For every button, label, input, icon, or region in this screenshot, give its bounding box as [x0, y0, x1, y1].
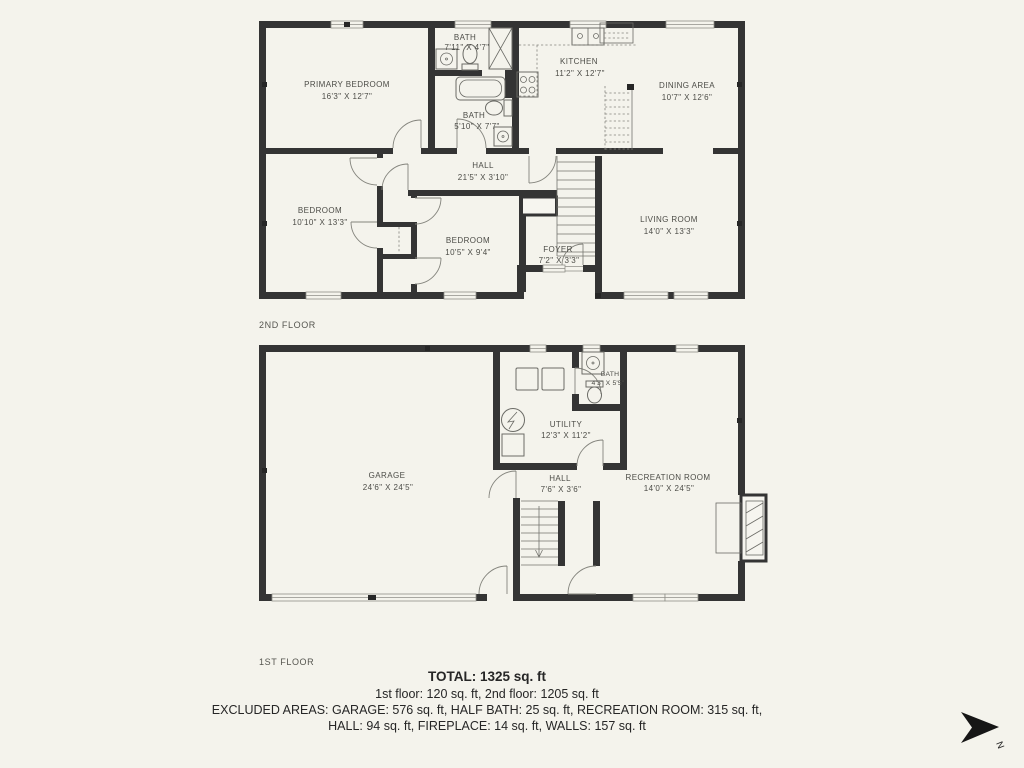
- room-dims: 7'2" X 3'3": [539, 256, 580, 265]
- dryer-icon: [542, 368, 564, 390]
- dimension-ticks: [262, 22, 742, 298]
- north-label: N: [993, 740, 1006, 751]
- room-name: PRIMARY BEDROOM: [304, 80, 390, 89]
- room-name: DINING AREA: [659, 81, 715, 90]
- room-name: KITCHEN: [560, 57, 598, 66]
- floor-plan-canvas: PRIMARY BEDROOM 16'3" X 12'7" BATH 7'11"…: [0, 0, 1024, 768]
- first-floor-label: 1ST FLOOR: [259, 657, 314, 667]
- room-name: FOYER: [543, 245, 573, 254]
- room-label-recreation-room: RECREATION ROOM 14'0" X 24'5": [626, 473, 711, 493]
- summary-excluded-1: EXCLUDED AREAS: GARAGE: 576 sq. ft, HALF…: [212, 703, 762, 717]
- shower-icon: [489, 28, 512, 69]
- foyer-closet: [522, 197, 557, 215]
- kitchen-sink-icon: [572, 28, 604, 45]
- second-floor-windows: [306, 21, 714, 299]
- toilet-icon: [486, 100, 513, 116]
- room-dims: 16'3" X 12'7": [322, 92, 372, 101]
- sink-icon: [436, 49, 457, 69]
- room-name: LIVING ROOM: [640, 215, 698, 224]
- room-dims: 24'6" X 24'5": [363, 483, 413, 492]
- room-name: UTILITY: [550, 420, 583, 429]
- fireplace-icon: [716, 495, 766, 561]
- room-dims: 10'7" X 12'6": [662, 93, 712, 102]
- room-dims: 10'10" X 13'3": [292, 218, 347, 227]
- summary-floors: 1st floor: 120 sq. ft, 2nd floor: 1205 s…: [375, 687, 599, 701]
- room-name: BATH: [454, 33, 476, 42]
- second-floor-plan: PRIMARY BEDROOM 16'3" X 12'7" BATH 7'11"…: [259, 21, 745, 330]
- room-label-kitchen: KITCHEN 11'2" X 12'7": [555, 57, 605, 78]
- summary-excluded-2: HALL: 94 sq. ft, FIREPLACE: 14 sq. ft, W…: [328, 719, 646, 733]
- second-floor-walls: [259, 21, 745, 299]
- room-dims: 14'0" X 13'3": [644, 227, 694, 236]
- room-name: GARAGE: [369, 471, 406, 480]
- area-summary: TOTAL: 1325 sq. ft 1st floor: 120 sq. ft…: [212, 669, 762, 733]
- room-label-bedroom-left: BEDROOM 10'10" X 13'3": [292, 206, 347, 227]
- room-dims: 12'3" X 11'2": [541, 431, 591, 440]
- room-label-bath-top: BATH 7'11" X 4'7": [445, 33, 490, 52]
- room-name: BEDROOM: [446, 236, 490, 245]
- room-label-primary-bedroom: PRIMARY BEDROOM 16'3" X 12'7": [304, 80, 390, 101]
- first-floor-plan: GARAGE 24'6" X 24'5" UTILITY 12'3" X 11'…: [259, 345, 766, 667]
- room-label-hall: HALL 7'6" X 3'6": [541, 474, 582, 494]
- room-dims: 5'10" X 7'7": [454, 122, 500, 131]
- room-label-hall: HALL 21'5" X 3'10": [458, 161, 508, 182]
- room-label-dining-area: DINING AREA 10'7" X 12'6": [659, 81, 715, 102]
- room-label-utility: UTILITY 12'3" X 11'2": [541, 420, 591, 440]
- room-name: BATH: [463, 111, 485, 120]
- room-name: BATH: [601, 371, 619, 378]
- room-label-bath-lower: BATH 5'10" X 7'7": [454, 111, 500, 131]
- summary-total: TOTAL: 1325 sq. ft: [428, 669, 547, 684]
- room-name: HALL: [549, 474, 571, 483]
- basement-stair-opening: [605, 84, 634, 150]
- room-label-bedroom-center: BEDROOM 10'5" X 9'4": [445, 236, 491, 257]
- bathtub-icon: [456, 77, 505, 100]
- second-floor-stairs: [557, 156, 595, 256]
- stove-icon: [517, 72, 538, 97]
- utility-tub-icon: [502, 434, 524, 456]
- room-label-garage: GARAGE 24'6" X 24'5": [363, 471, 413, 492]
- second-floor-label: 2ND FLOOR: [259, 320, 316, 330]
- room-name: RECREATION ROOM: [626, 473, 711, 482]
- first-floor-stairs: [521, 501, 558, 565]
- room-name: BEDROOM: [298, 206, 342, 215]
- north-arrow-icon: N: [961, 712, 1006, 751]
- room-dims: 11'2" X 12'7": [555, 69, 605, 78]
- room-dims: 10'5" X 9'4": [445, 248, 491, 257]
- room-name: HALL: [472, 161, 494, 170]
- room-label-living-room: LIVING ROOM 14'0" X 13'3": [640, 215, 698, 236]
- room-label-foyer: FOYER 7'2" X 3'3": [539, 245, 580, 265]
- room-dims: 14'0" X 24'5": [644, 484, 694, 493]
- washer-icon: [516, 368, 538, 390]
- room-dims: 4'3" X 5'5": [591, 380, 624, 387]
- room-dims: 7'6" X 3'6": [541, 485, 582, 494]
- room-dims: 21'5" X 3'10": [458, 173, 508, 182]
- room-dims: 7'11" X 4'7": [445, 43, 490, 52]
- first-floor-room-labels: GARAGE 24'6" X 24'5" UTILITY 12'3" X 11'…: [363, 371, 711, 494]
- electrical-panel-icon: [502, 409, 525, 432]
